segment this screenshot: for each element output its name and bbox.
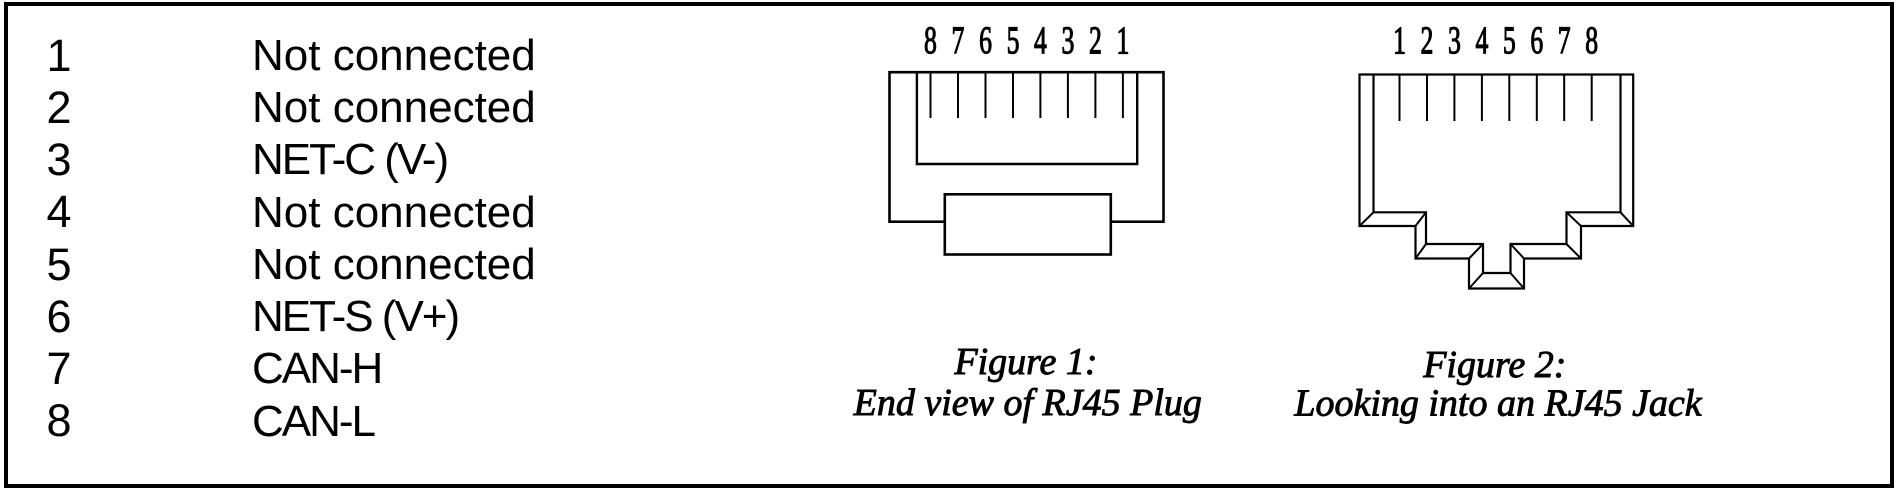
svg-text:5: 5 [1007,20,1020,62]
svg-text:1: 1 [1116,20,1129,62]
svg-text:1: 1 [1393,20,1406,62]
svg-text:4: 4 [1475,20,1488,62]
svg-text:8: 8 [924,20,937,62]
svg-text:7: 7 [952,20,965,62]
svg-text:7: 7 [1558,20,1571,62]
svg-text:End view of RJ45 Plug: End view of RJ45 Plug [853,382,1202,424]
svg-text:5: 5 [1503,20,1516,62]
svg-text:Figure 2:: Figure 2: [1422,344,1566,386]
svg-text:2: 2 [1089,20,1102,62]
svg-text:8: 8 [1585,20,1598,62]
svg-text:2: 2 [1421,20,1434,62]
svg-text:Figure 1:: Figure 1: [953,341,1097,383]
svg-text:4: 4 [1034,20,1047,62]
svg-text:6: 6 [1530,20,1543,62]
svg-text:6: 6 [979,20,992,62]
svg-text:3: 3 [1448,20,1461,62]
svg-text:Looking into an RJ45 Jack: Looking into an RJ45 Jack [1293,383,1702,425]
svg-text:3: 3 [1061,20,1074,62]
